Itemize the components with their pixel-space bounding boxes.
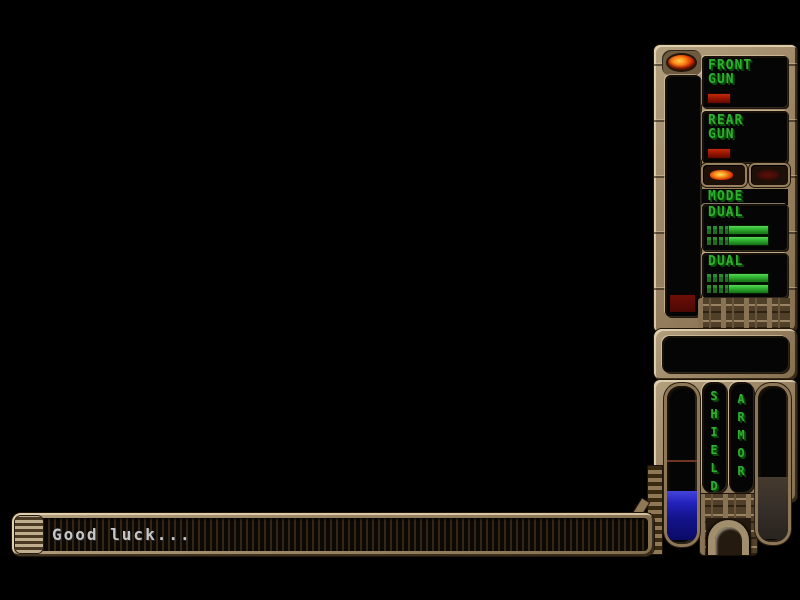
front-gun-panel: FRONT GUN [702, 56, 788, 108]
gauge-fill [729, 226, 768, 234]
weapon-energy-fill [670, 295, 695, 312]
mode-light-left-lamp-icon [710, 170, 733, 180]
gauge-row [707, 226, 785, 234]
shield-gauge-fill [667, 491, 697, 540]
gauge-row [707, 237, 785, 245]
armor-label: ARMOR [735, 392, 747, 482]
weapon-mode-panel-rear: DUAL [702, 253, 788, 298]
mode-light-left [703, 165, 745, 185]
message-bar: Good luck... [12, 513, 654, 556]
weapon-mode-rear-label: DUAL [708, 255, 743, 269]
front-gun-label: FRONT GUN [708, 59, 752, 87]
weapon-mode-panel-front: DUAL [702, 204, 788, 251]
shield-label: SHIELD [708, 389, 720, 497]
led-housing [662, 50, 702, 76]
shield-label-panel: SHIELD [702, 382, 727, 493]
mode-label-strip: MODE [702, 189, 788, 205]
data-display [662, 336, 789, 373]
armor-gauge [758, 386, 788, 542]
data-display-panel [654, 329, 797, 380]
shield-gauge [667, 386, 697, 544]
weapons-panel: FRONT GUN REAR GUN MODE DUAL DUAL [654, 45, 797, 332]
weapon-energy-bar [665, 75, 701, 317]
mode-light-right-lamp-icon [757, 170, 779, 180]
weapon-mode-front-label: DUAL [708, 206, 743, 220]
rear-gun-label: REAR GUN [708, 114, 743, 142]
gauge-fill [729, 285, 768, 293]
rear-gun-panel: REAR GUN [702, 111, 788, 163]
status-led-icon [668, 55, 695, 70]
circuit-greeble [698, 298, 793, 329]
message-bar-endcap [15, 516, 43, 553]
rear-gun-power-bar [708, 149, 730, 158]
panel-right-edge [787, 45, 797, 332]
gauge-fill [729, 237, 768, 245]
gauge-row [707, 274, 785, 282]
message-text: Good luck... [52, 513, 192, 556]
armor-label-panel: ARMOR [729, 382, 754, 493]
gauge-fill [729, 274, 768, 282]
game-screen: { "window": {"width": 800, "height": 600… [0, 0, 800, 600]
armor-gauge-fill [758, 477, 788, 539]
mode-light-right [751, 165, 788, 185]
shield-marker-line [667, 460, 697, 462]
arch-greeble-icon [708, 520, 749, 555]
defense-panel-base [700, 494, 757, 555]
front-gun-power-bar [708, 94, 730, 103]
gauge-row [707, 285, 785, 293]
mode-label: MODE [708, 190, 743, 204]
